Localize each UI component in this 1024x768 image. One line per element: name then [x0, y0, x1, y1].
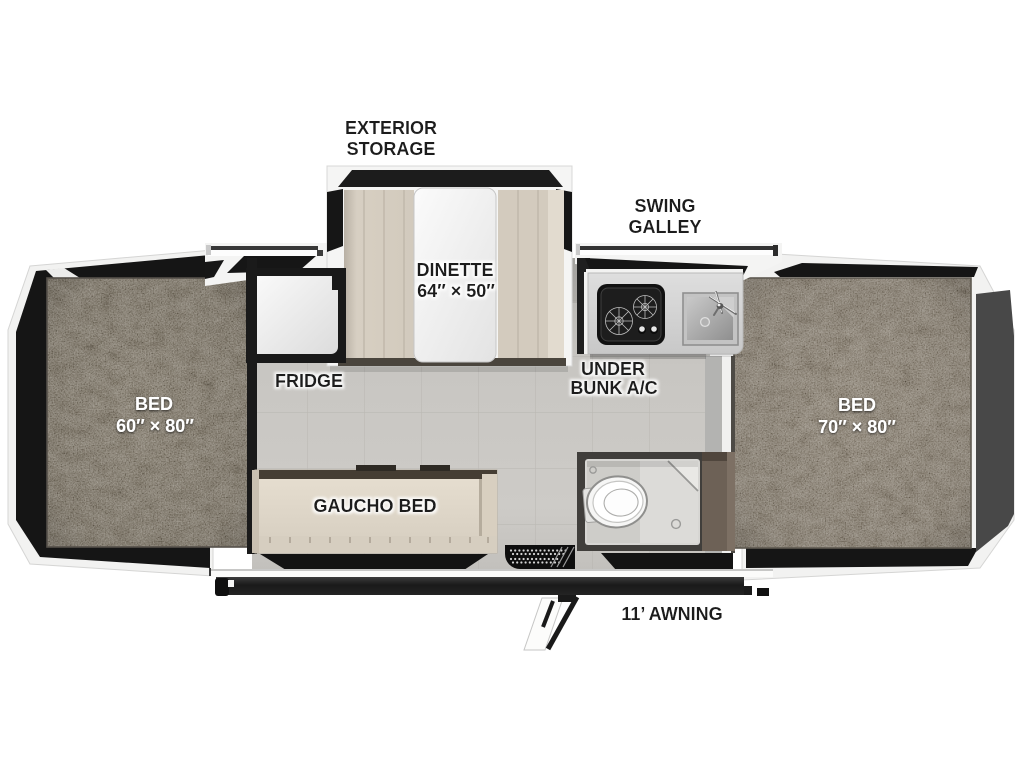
svg-text:STORAGE: STORAGE: [347, 139, 436, 159]
svg-text:UNDER: UNDER: [581, 359, 645, 379]
svg-text:60″ × 80″: 60″ × 80″: [116, 416, 194, 436]
svg-text:GAUCHO BED: GAUCHO BED: [313, 496, 436, 516]
svg-text:BUNK A/C: BUNK A/C: [570, 378, 657, 398]
svg-text:BED: BED: [135, 394, 173, 414]
svg-text:EXTERIOR: EXTERIOR: [345, 118, 437, 138]
svg-text:64″ × 50″: 64″ × 50″: [417, 281, 495, 301]
svg-text:70″ × 80″: 70″ × 80″: [818, 417, 896, 437]
svg-text:11’ AWNING: 11’ AWNING: [621, 604, 722, 624]
svg-text:FRIDGE: FRIDGE: [275, 371, 343, 391]
svg-text:SWING: SWING: [635, 196, 696, 216]
svg-text:DINETTE: DINETTE: [416, 260, 493, 280]
svg-text:BED: BED: [838, 395, 876, 415]
svg-text:GALLEY: GALLEY: [628, 217, 701, 237]
